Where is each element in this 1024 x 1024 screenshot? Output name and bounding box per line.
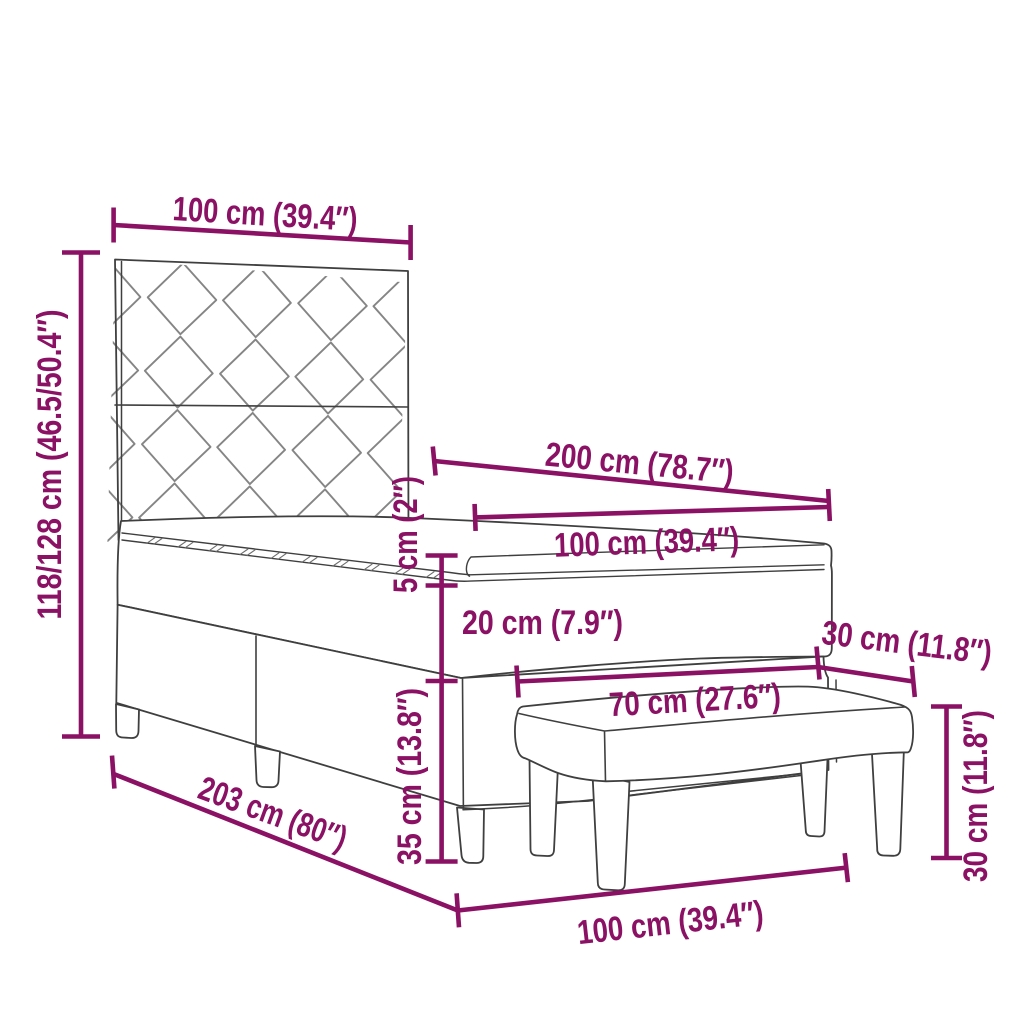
svg-text:100 cm (39.4″): 100 cm (39.4″) bbox=[554, 520, 740, 564]
svg-text:35 cm (13.8″): 35 cm (13.8″) bbox=[391, 688, 429, 865]
svg-text:20 cm (7.9″): 20 cm (7.9″) bbox=[462, 604, 623, 642]
svg-text:5 cm (2″): 5 cm (2″) bbox=[387, 476, 425, 593]
svg-text:118/128 cm (46.5/50.4″): 118/128 cm (46.5/50.4″) bbox=[31, 310, 69, 620]
svg-text:30 cm (11.8″): 30 cm (11.8″) bbox=[957, 710, 995, 882]
